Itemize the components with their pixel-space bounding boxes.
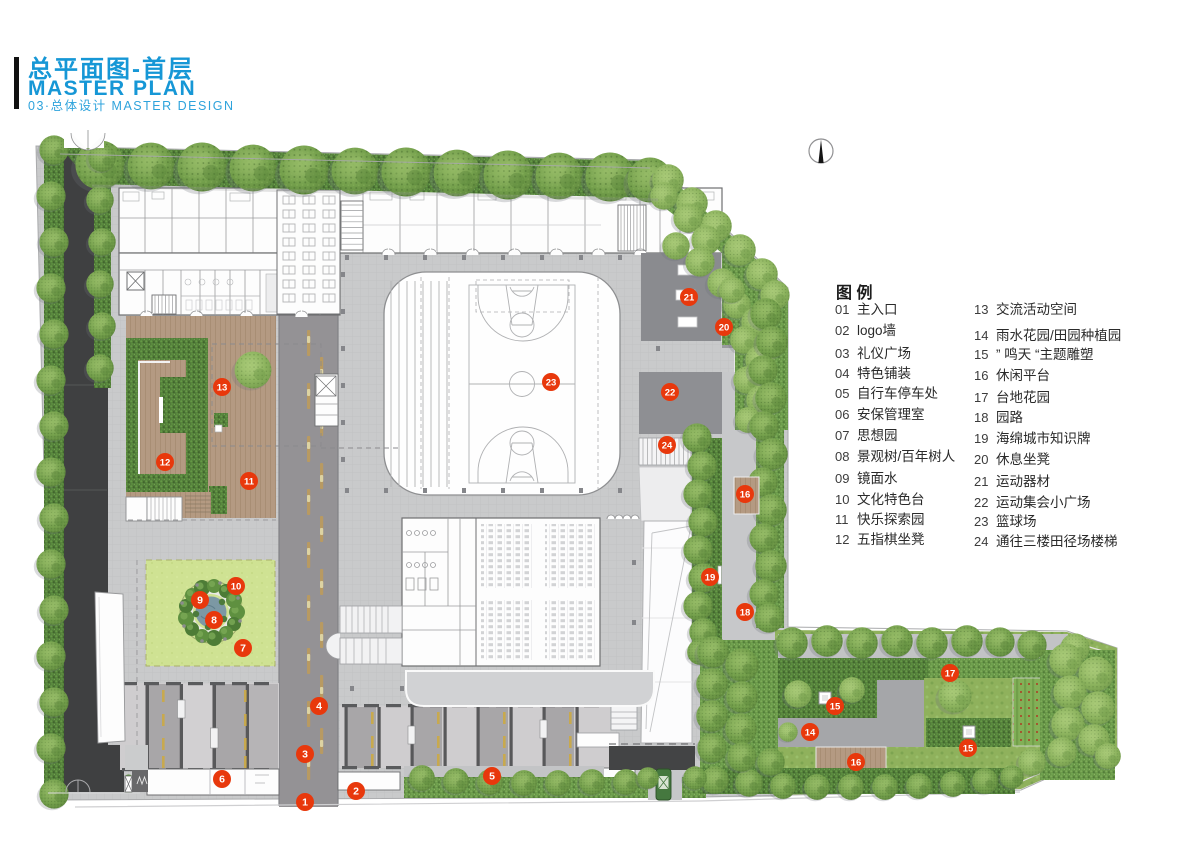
svg-text:logo墙: logo墙 <box>857 323 896 338</box>
svg-text:16: 16 <box>851 757 862 768</box>
svg-text:15: 15 <box>830 701 841 712</box>
svg-text:安保管理室: 安保管理室 <box>857 406 925 422</box>
svg-text:02: 02 <box>835 323 849 338</box>
svg-text:雨水花园/田园种植园: 雨水花园/田园种植园 <box>996 328 1121 343</box>
svg-text:五指棋坐凳: 五指棋坐凳 <box>857 532 925 547</box>
svg-text:16: 16 <box>740 489 751 500</box>
svg-text:特色铺装: 特色铺装 <box>857 365 911 381</box>
svg-text:04: 04 <box>835 366 849 381</box>
svg-text:10: 10 <box>835 492 849 507</box>
svg-text:15: 15 <box>974 347 988 362</box>
svg-text:12: 12 <box>835 532 849 547</box>
svg-text:休息坐凳: 休息坐凳 <box>996 451 1050 467</box>
svg-text:03·总体设计 MASTER DESIGN: 03·总体设计 MASTER DESIGN <box>28 98 235 113</box>
svg-text:7: 7 <box>240 642 246 654</box>
svg-text:07: 07 <box>835 428 849 443</box>
svg-text:20: 20 <box>719 322 730 333</box>
svg-text:台地花园: 台地花园 <box>996 390 1050 405</box>
svg-text:通往三楼田径场楼梯: 通往三楼田径场楼梯 <box>996 534 1118 549</box>
svg-text:8: 8 <box>211 614 217 626</box>
svg-text:篮球场: 篮球场 <box>996 514 1037 529</box>
svg-text:15: 15 <box>963 743 974 754</box>
svg-text:21: 21 <box>974 474 988 489</box>
svg-text:礼仪广场: 礼仪广场 <box>857 346 911 361</box>
svg-text:18: 18 <box>740 607 751 618</box>
svg-text:22: 22 <box>974 495 988 510</box>
svg-text:海绵城市知识牌: 海绵城市知识牌 <box>996 430 1091 446</box>
svg-text:1: 1 <box>302 796 308 808</box>
svg-text:运动器材: 运动器材 <box>996 474 1050 489</box>
svg-text:6: 6 <box>219 773 225 785</box>
svg-text:文化特色台: 文化特色台 <box>857 491 925 507</box>
svg-text:自行车停车处: 自行车停车处 <box>857 385 938 401</box>
svg-text:镜面水: 镜面水 <box>857 471 898 486</box>
svg-text:思想园: 思想园 <box>857 428 898 443</box>
svg-text:MASTER PLAN: MASTER PLAN <box>28 77 196 100</box>
svg-text:19: 19 <box>705 572 716 583</box>
svg-text:21: 21 <box>684 292 695 303</box>
svg-text:03: 03 <box>835 346 849 361</box>
svg-text:11: 11 <box>244 476 255 487</box>
svg-text:主入口: 主入口 <box>857 302 898 317</box>
svg-text:06: 06 <box>835 407 849 422</box>
svg-text:交流活动空间: 交流活动空间 <box>996 301 1077 317</box>
svg-text:4: 4 <box>316 700 322 712</box>
svg-text:3: 3 <box>302 748 308 760</box>
svg-text:13: 13 <box>217 382 228 393</box>
svg-text:01: 01 <box>835 302 849 317</box>
svg-text:10: 10 <box>231 581 242 592</box>
svg-text:18: 18 <box>974 410 988 425</box>
svg-text:12: 12 <box>160 457 171 468</box>
svg-text:11: 11 <box>835 512 849 527</box>
svg-text:08: 08 <box>835 449 849 464</box>
svg-text:05: 05 <box>835 386 849 401</box>
svg-text:景观树/百年树人: 景观树/百年树人 <box>857 449 956 464</box>
svg-text:24: 24 <box>662 440 673 451</box>
svg-text:运动集会小广场: 运动集会小广场 <box>996 495 1091 510</box>
svg-text:23: 23 <box>546 377 557 388</box>
svg-text:13: 13 <box>974 302 988 317</box>
svg-text:14: 14 <box>805 727 816 738</box>
svg-text:20: 20 <box>974 452 988 467</box>
svg-text:14: 14 <box>974 328 988 343</box>
svg-text:17: 17 <box>945 668 956 679</box>
svg-text:23: 23 <box>974 514 988 529</box>
svg-text:24: 24 <box>974 534 988 549</box>
svg-text:园路: 园路 <box>996 410 1024 425</box>
svg-text:5: 5 <box>489 770 495 782</box>
svg-text:快乐探索园: 快乐探索园 <box>857 512 925 527</box>
svg-text:” 鸣天 “主题雕塑: ” 鸣天 “主题雕塑 <box>996 346 1094 362</box>
svg-text:2: 2 <box>353 785 359 797</box>
svg-text:9: 9 <box>197 594 203 606</box>
svg-text:19: 19 <box>974 431 988 446</box>
svg-text:09: 09 <box>835 471 849 486</box>
svg-text:17: 17 <box>974 390 988 405</box>
svg-text:休闲平台: 休闲平台 <box>996 368 1050 383</box>
svg-text:22: 22 <box>665 387 676 398</box>
svg-text:16: 16 <box>974 368 988 383</box>
svg-text:图 例: 图 例 <box>836 283 872 302</box>
